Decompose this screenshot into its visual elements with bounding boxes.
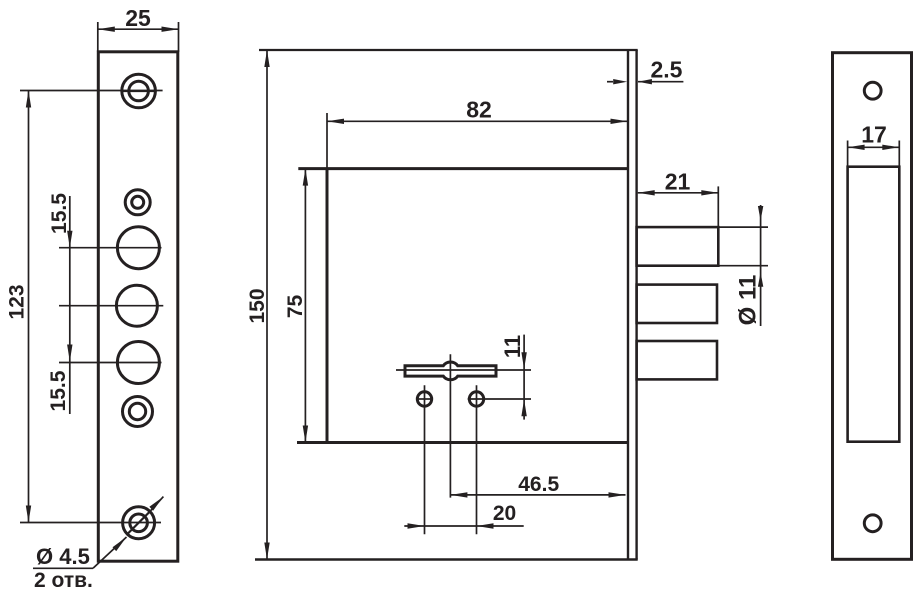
svg-text:46.5: 46.5 (518, 473, 559, 496)
svg-text:21: 21 (665, 169, 691, 195)
svg-text:11: 11 (500, 335, 525, 358)
svg-text:150: 150 (246, 288, 269, 323)
svg-text:2 отв.: 2 отв. (34, 569, 93, 592)
svg-text:2.5: 2.5 (651, 57, 683, 83)
svg-text:Ø 11: Ø 11 (734, 275, 761, 326)
svg-text:75: 75 (284, 295, 307, 319)
svg-text:25: 25 (125, 5, 151, 31)
svg-text:123: 123 (6, 284, 29, 319)
svg-text:15.5: 15.5 (47, 370, 70, 411)
svg-text:82: 82 (466, 97, 492, 123)
svg-text:Ø 4.5: Ø 4.5 (36, 544, 90, 569)
svg-text:17: 17 (861, 122, 887, 148)
svg-text:15.5: 15.5 (48, 193, 71, 234)
svg-text:20: 20 (493, 502, 516, 525)
